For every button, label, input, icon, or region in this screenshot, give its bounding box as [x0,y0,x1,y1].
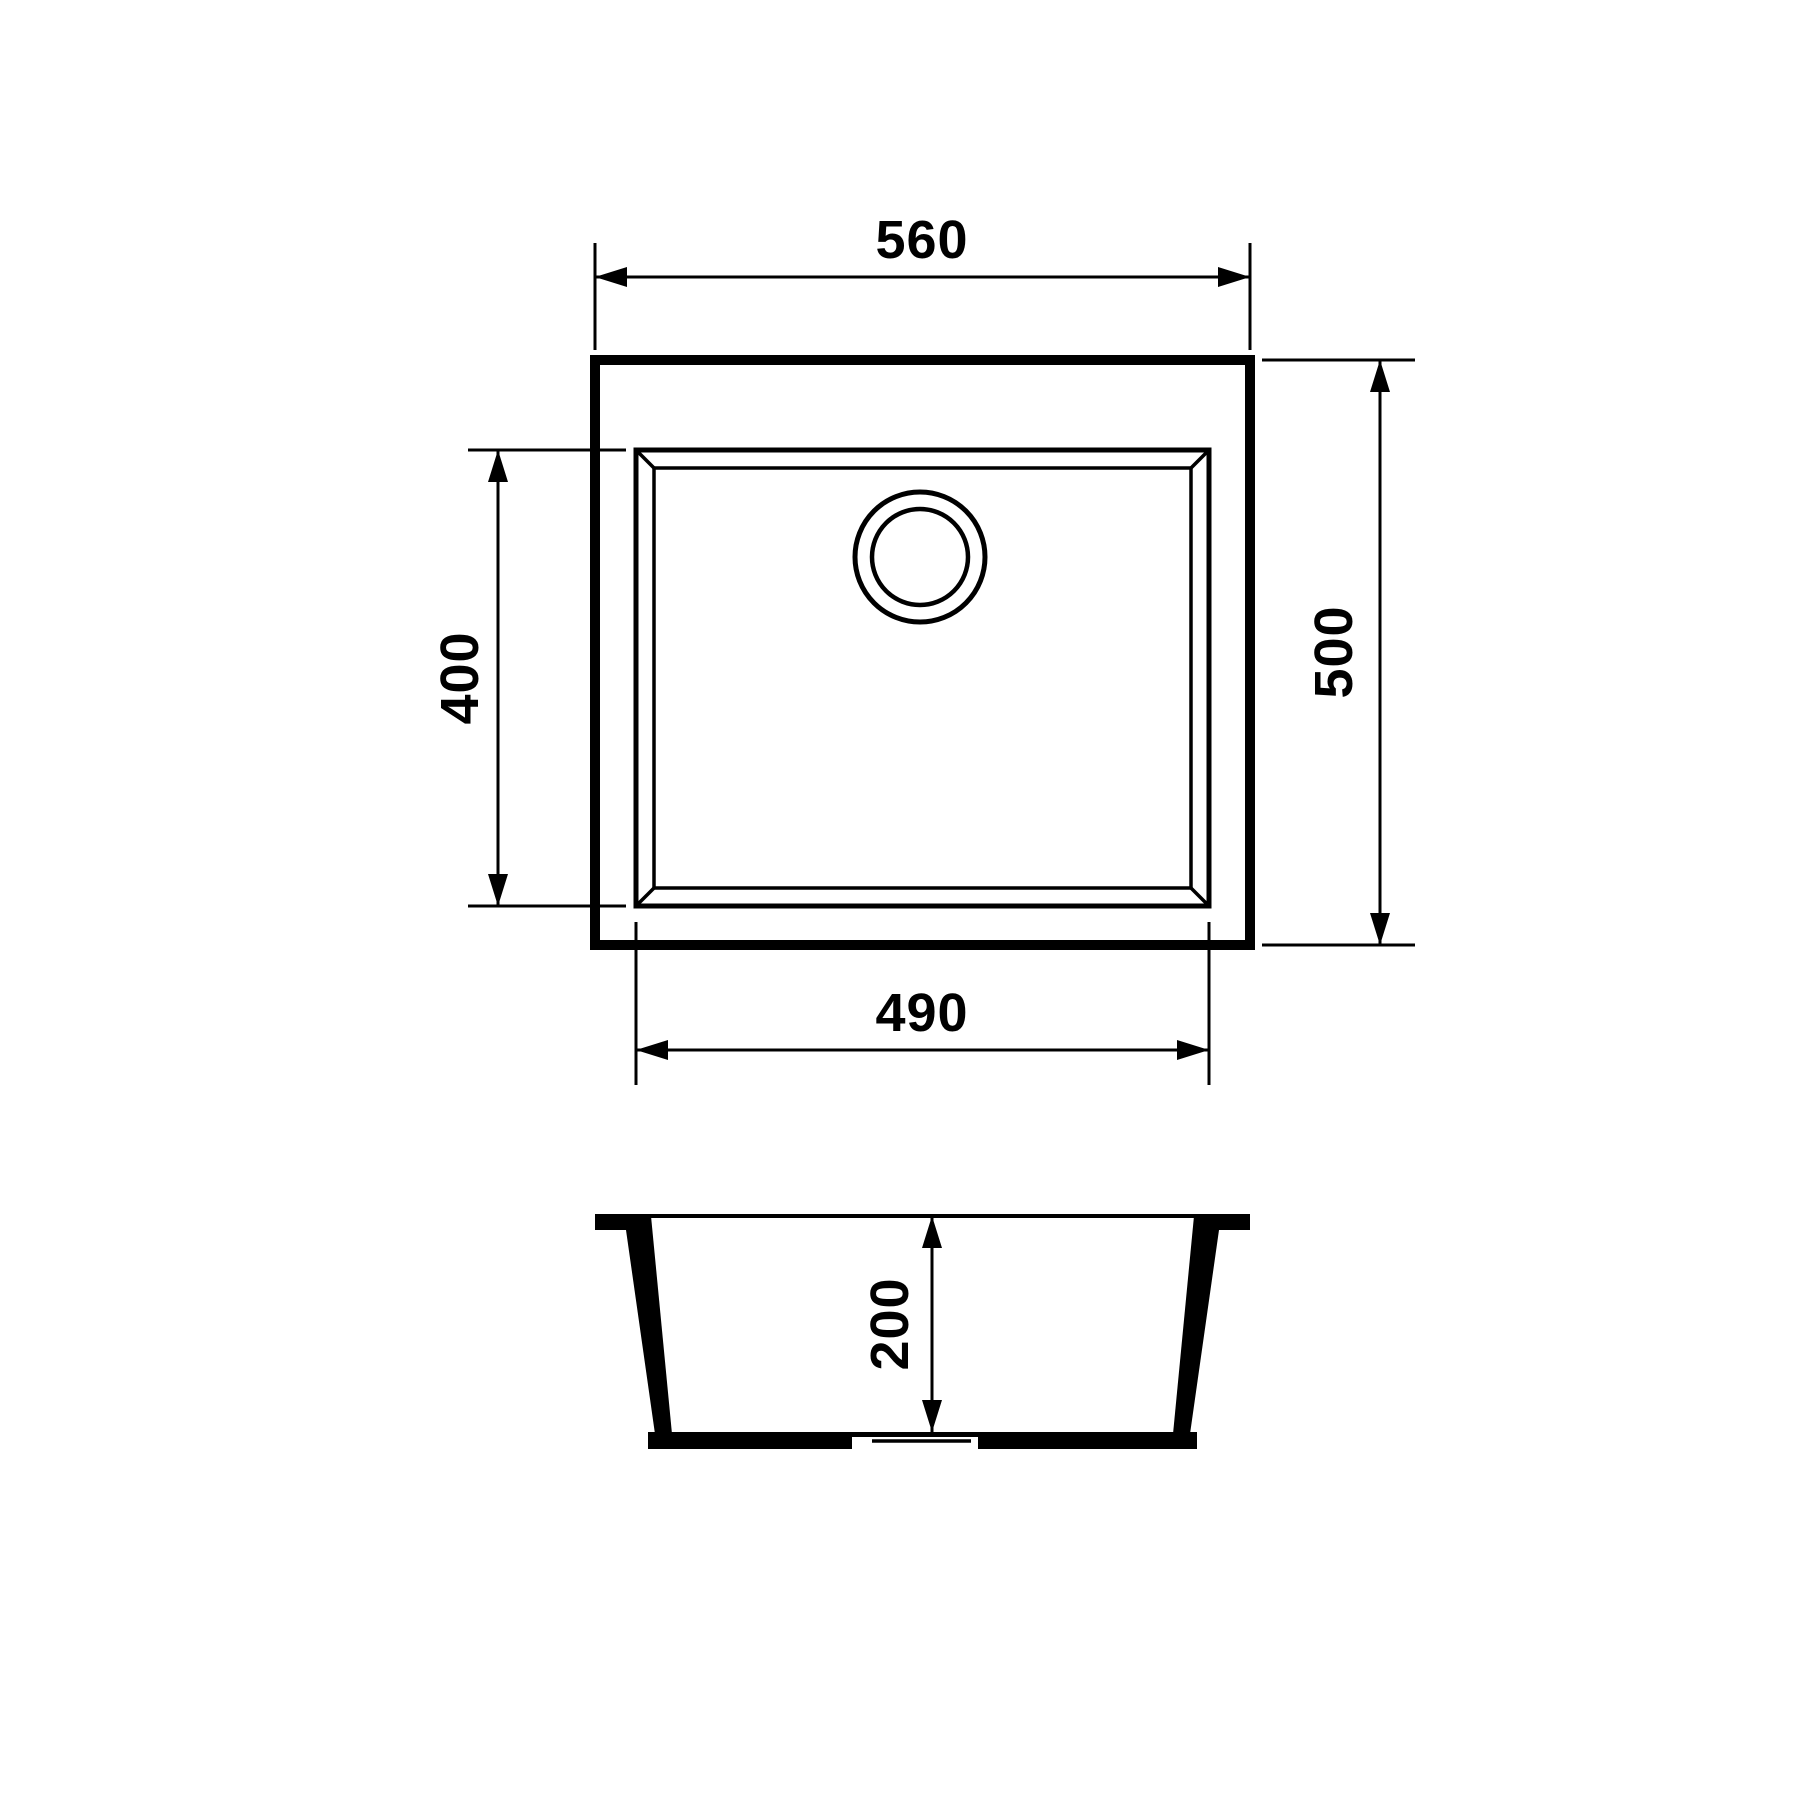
drain-inner-circle [872,509,968,605]
arrowhead-up [1370,360,1390,392]
arrowhead-left [595,267,627,287]
arrowhead-down [1370,913,1390,945]
section-drain-notch [852,1437,978,1449]
bevel-corner-bottom-left [636,888,654,906]
dim-label-bowl-width: 490 [875,983,968,1043]
bevel-corner-top-left [636,450,654,468]
sink-technical-drawing: 560 500 400 490 [0,0,1800,1800]
section-wall-left [624,1216,672,1434]
section-wall-right [1173,1216,1221,1434]
arrowhead-left [636,1040,668,1060]
arrowhead-right [1218,267,1250,287]
dim-label-bowl-depth: 400 [430,631,490,724]
arrowhead-up [488,450,508,482]
drawing-canvas: 560 500 400 490 [0,0,1800,1800]
arrowhead-down [922,1400,942,1432]
arrowhead-down [488,874,508,906]
sink-front-section [595,1214,1250,1449]
sink-top-view [595,360,1250,945]
bevel-corner-bottom-right [1191,888,1209,906]
bowl-outer-rect [636,450,1209,906]
dim-bowl-height: 200 [860,1216,942,1432]
arrowhead-up [922,1216,942,1248]
dim-overall-width: 560 [595,210,1250,350]
dim-label-bowl-height: 200 [860,1277,920,1370]
dim-label-overall-depth: 500 [1304,605,1364,698]
arrowhead-right [1177,1040,1209,1060]
dim-label-overall-width: 560 [875,210,968,270]
drain-outer-circle [855,492,985,622]
bowl-inner-rect [654,468,1191,888]
bevel-corner-top-right [1191,450,1209,468]
dim-overall-depth: 500 [1262,360,1415,945]
